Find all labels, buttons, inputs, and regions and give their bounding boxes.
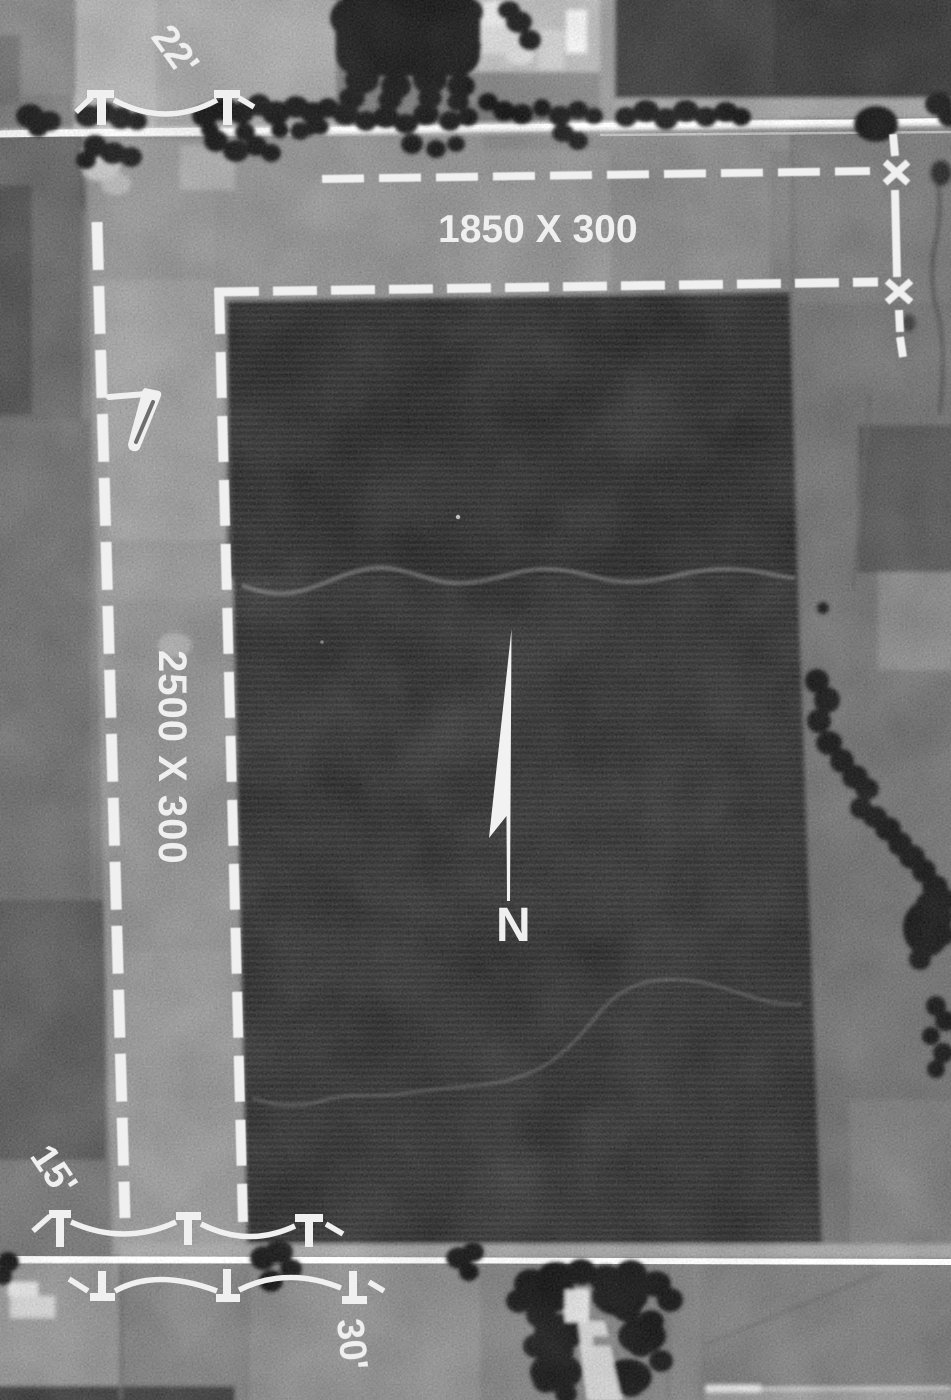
- svg-text:N: N: [496, 899, 531, 952]
- svg-text:1850 X 300: 1850 X 300: [438, 208, 638, 251]
- svg-text:2500 X 300: 2500 X 300: [150, 650, 194, 865]
- svg-text:30': 30': [328, 1317, 375, 1372]
